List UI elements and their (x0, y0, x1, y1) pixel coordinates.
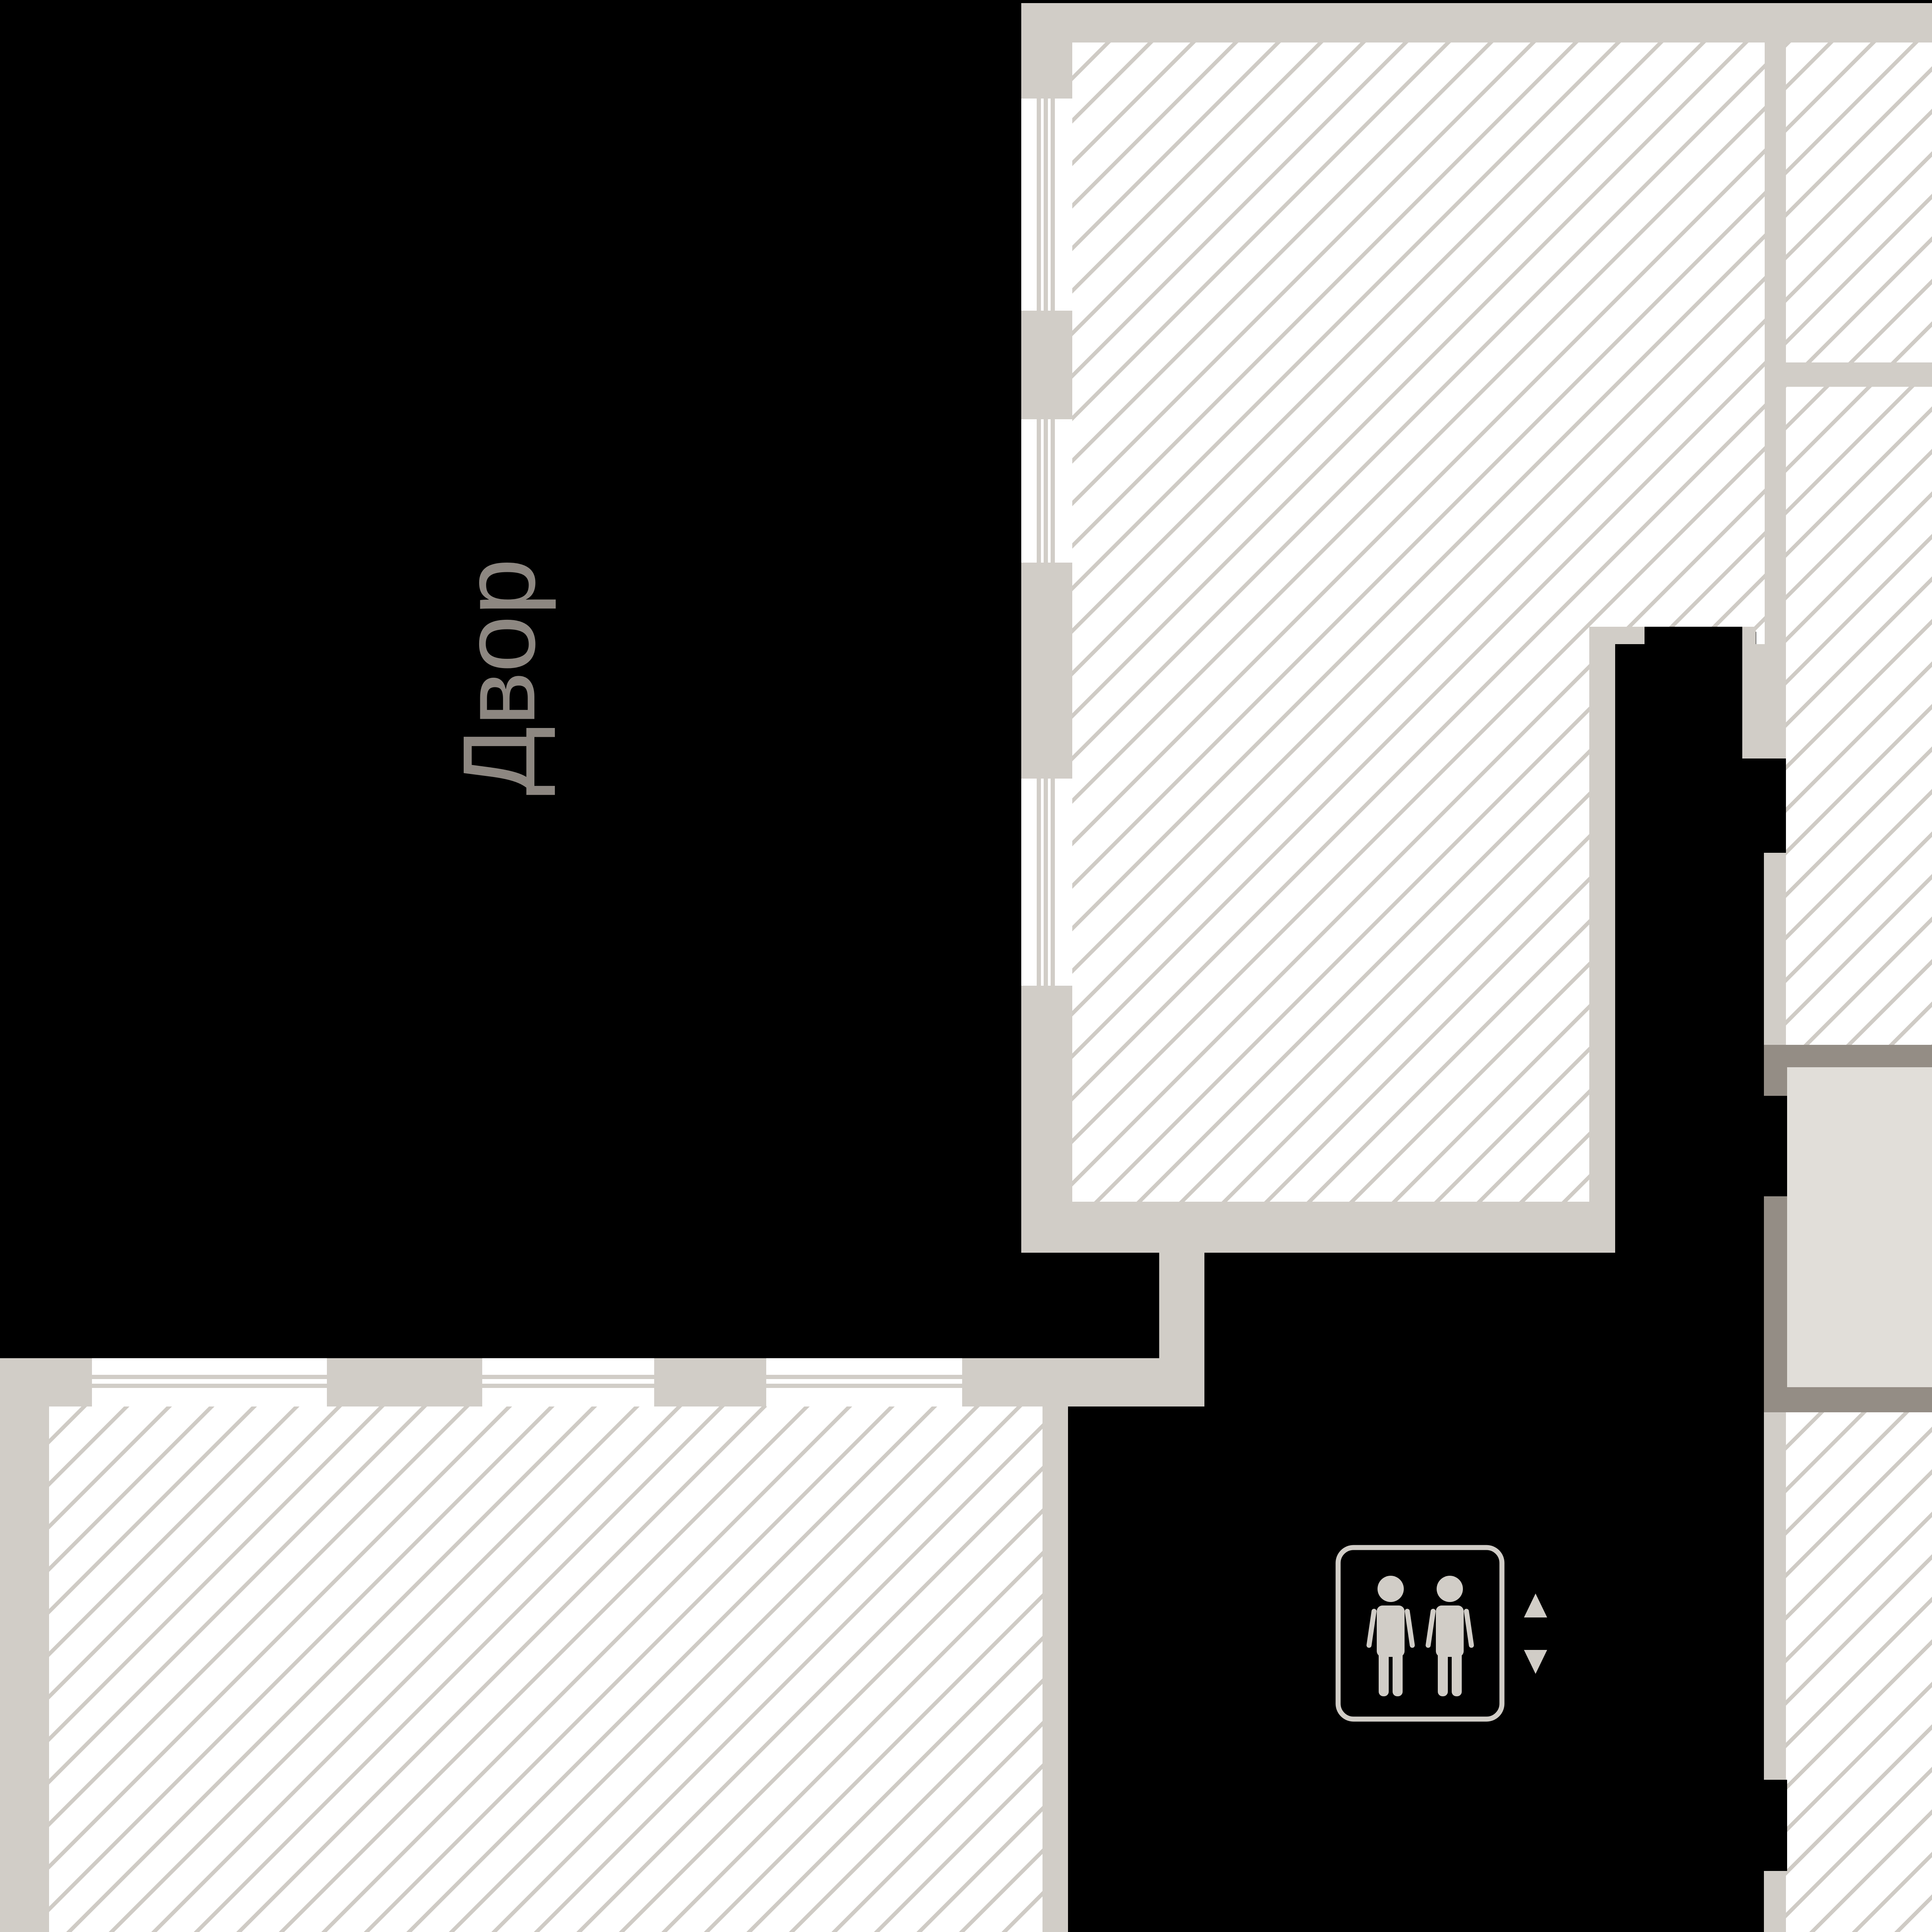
svg-text:Двор: Двор (442, 558, 557, 796)
